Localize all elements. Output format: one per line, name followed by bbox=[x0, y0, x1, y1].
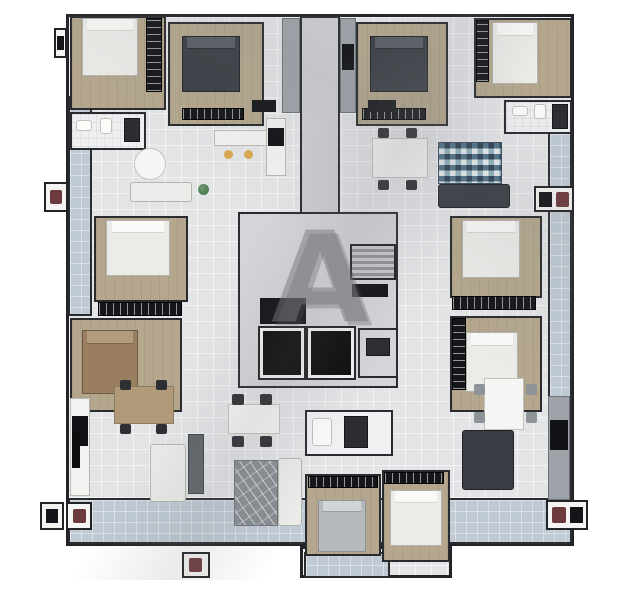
bed-bottom-center-2 bbox=[390, 490, 442, 546]
ac-unit-bottom-right-1 bbox=[552, 507, 566, 523]
bed-mid-right-1 bbox=[462, 220, 520, 278]
chair-bc-2 bbox=[260, 394, 272, 405]
shower-top-left bbox=[124, 118, 140, 142]
bed-top-right bbox=[492, 22, 538, 84]
cooktop-top-left bbox=[268, 128, 284, 146]
shaft-duct bbox=[260, 298, 306, 324]
floor-plan-image: A bbox=[0, 0, 639, 600]
ac-unit-bottom-left-1 bbox=[46, 509, 58, 523]
sofa-bottom-right bbox=[462, 430, 514, 490]
chair-bl-3 bbox=[120, 424, 131, 434]
toilet-top-left bbox=[100, 118, 112, 134]
sofa-top-right bbox=[438, 184, 510, 208]
wardrobe-bottom-center-2 bbox=[384, 472, 444, 484]
kitchen-counter-top-left bbox=[266, 118, 286, 176]
stool-1 bbox=[224, 150, 233, 159]
core-landing-mat bbox=[352, 284, 388, 297]
dining-table-top-right bbox=[372, 138, 428, 178]
elevator-2 bbox=[308, 328, 354, 378]
chair-br-1 bbox=[474, 384, 485, 395]
dining-table-top-left bbox=[134, 148, 166, 180]
appliance-bottom-right bbox=[550, 420, 568, 450]
bed-bottom-center-1 bbox=[318, 500, 366, 552]
chair-bl-4 bbox=[156, 424, 167, 434]
kitchen-counter-bottom-center bbox=[188, 434, 204, 494]
entry-mat-left bbox=[252, 100, 276, 112]
entry-mat-right bbox=[368, 100, 396, 112]
toilet-top-right bbox=[534, 104, 546, 119]
dining-table-bottom-right bbox=[484, 378, 524, 430]
rug-bottom-center bbox=[234, 460, 278, 526]
stool-2 bbox=[244, 150, 253, 159]
sofa-bottom-center bbox=[278, 458, 302, 526]
wardrobe-mid-right bbox=[452, 296, 536, 310]
chair-br-3 bbox=[474, 412, 485, 423]
sink-top-right bbox=[512, 106, 528, 116]
wardrobe-top-right bbox=[476, 20, 489, 82]
wardrobe-mid-left bbox=[98, 302, 182, 316]
ac-unit-bottom-center bbox=[189, 558, 202, 572]
washer-bottom-center bbox=[312, 418, 332, 446]
chair-bc-4 bbox=[260, 436, 272, 447]
chair-br-4 bbox=[526, 412, 537, 423]
dining-table-bottom-center bbox=[228, 404, 280, 434]
chair-tr-4 bbox=[406, 180, 417, 190]
chair-bl-1 bbox=[120, 380, 131, 390]
ac-unit-bottom-right-2 bbox=[570, 507, 583, 523]
chair-tr-2 bbox=[406, 128, 417, 138]
kitchen-island-top-left bbox=[214, 130, 268, 146]
bed-mid-left-1 bbox=[106, 220, 170, 276]
ac-unit-bottom-left-2 bbox=[73, 509, 86, 523]
ac-unit-top-left bbox=[57, 36, 64, 50]
bed-top-center-right bbox=[370, 36, 428, 92]
chair-bc-1 bbox=[232, 394, 244, 405]
ac-unit-right-1 bbox=[539, 192, 552, 207]
chair-tr-3 bbox=[378, 180, 389, 190]
bed-top-left-2 bbox=[182, 36, 240, 92]
chair-br-2 bbox=[526, 384, 537, 395]
core-lobby-cabinet bbox=[366, 338, 390, 356]
mosaic-rug-top-right bbox=[438, 142, 502, 184]
elevator-1 bbox=[260, 328, 304, 378]
shower-top-right bbox=[552, 104, 568, 129]
chair-tr-1 bbox=[378, 128, 389, 138]
corridor-top bbox=[300, 16, 340, 214]
sofa-top-left bbox=[130, 182, 192, 202]
plant-top-left bbox=[198, 184, 209, 195]
wardrobe-bottom-center-1 bbox=[308, 476, 378, 488]
tv-bottom-left bbox=[72, 432, 80, 468]
wardrobe-top-left bbox=[146, 18, 162, 92]
bed-top-left bbox=[82, 18, 138, 76]
chair-bl-2 bbox=[156, 380, 167, 390]
closet-bottom-center bbox=[344, 416, 368, 448]
ac-unit-right-2 bbox=[556, 192, 569, 207]
dining-table-bottom-left bbox=[114, 386, 174, 424]
sofa-bottom-left bbox=[150, 444, 186, 502]
wardrobe-mid-right-2 bbox=[452, 318, 466, 390]
stairs bbox=[350, 244, 396, 280]
ac-unit-left bbox=[50, 190, 62, 204]
sink-top-left bbox=[76, 120, 92, 131]
chair-bc-3 bbox=[232, 436, 244, 447]
wardrobe-top-left-2 bbox=[182, 108, 244, 120]
fridge-top-center bbox=[342, 44, 354, 70]
appliance-cabinet-left bbox=[282, 18, 300, 113]
